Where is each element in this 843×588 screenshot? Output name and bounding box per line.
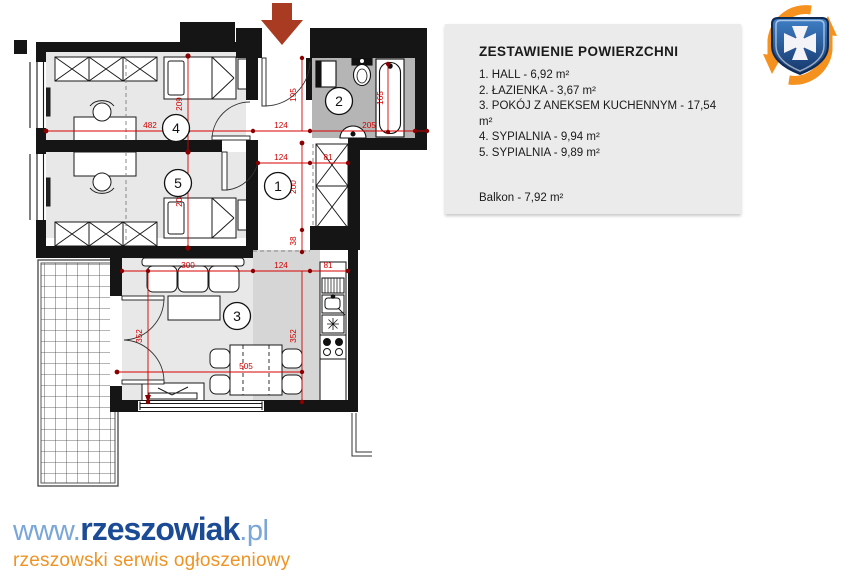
room-badge-hall: 1	[265, 173, 292, 200]
legend-item: 1. HALL - 6,92 m²	[479, 68, 731, 84]
legend-title: ZESTAWIENIE POWIERZCHNI	[479, 44, 731, 59]
window-bedroom5	[28, 154, 46, 220]
kitchen-counter	[320, 262, 346, 402]
svg-text:3: 3	[233, 308, 241, 324]
room-badge-bedroom4: 4	[163, 115, 190, 142]
dim-label: 505	[239, 362, 253, 371]
svg-text:1: 1	[274, 178, 282, 194]
area-summary-panel: ZESTAWIENIE POWIERZCHNI 1. HALL - 6,92 m…	[445, 24, 741, 214]
radiator-icon	[46, 88, 50, 116]
dim-label: 124	[274, 121, 288, 130]
bed-icon	[164, 57, 236, 99]
dim-label: 352	[289, 329, 298, 343]
url-www: www.	[13, 515, 80, 547]
svg-text:4: 4	[172, 120, 180, 136]
site-watermark: www.rzeszowiak.pl rzeszowski serwis ogło…	[13, 512, 290, 572]
legend-balcony: Balkon - 7,92 m²	[479, 192, 731, 204]
dim-label: 38	[289, 236, 298, 246]
washing-machine-icon	[316, 61, 336, 87]
floorplan-page: 482 124 205 124 81 300 124 81 505 209 20…	[0, 0, 843, 588]
dim-label: 209	[175, 97, 184, 111]
legend-item: 2. ŁAZIENKA - 3,67 m²	[479, 84, 731, 100]
dim-label: 195	[289, 88, 298, 102]
wardrobe-icon	[55, 222, 157, 246]
drainer-icon	[322, 278, 344, 293]
window-bedroom4	[28, 62, 46, 128]
room-badge-bathroom: 2	[326, 88, 353, 115]
dim-label: 124	[274, 261, 288, 270]
room-badge-bedroom5: 5	[165, 170, 192, 197]
balcony	[38, 260, 118, 486]
site-url: www.rzeszowiak.pl	[13, 512, 290, 548]
desk-icon	[74, 152, 136, 176]
exterior-divider-wall	[352, 413, 372, 456]
legend-item: 4. SYPIALNIA - 9,94 m²	[479, 130, 731, 146]
legend-list: 1. HALL - 6,92 m² 2. ŁAZIENKA - 3,67 m² …	[479, 68, 731, 161]
entrance-door	[262, 58, 310, 106]
entrance-arrow-icon	[261, 3, 303, 45]
svg-text:2: 2	[335, 93, 343, 109]
rzeszowiak-logo	[761, 2, 839, 88]
url-brand: rzeszowiak	[80, 511, 239, 547]
room-badge-living: 3	[224, 303, 251, 330]
tv-stand-icon	[142, 383, 204, 402]
dim-label: 300	[181, 261, 195, 270]
kitchen-sink-icon	[322, 295, 345, 315]
url-tld: .pl	[239, 515, 268, 547]
toilet-icon	[352, 57, 372, 86]
coffee-table-icon	[168, 296, 220, 320]
hood-icon	[322, 315, 344, 333]
dim-label: 165	[376, 91, 385, 105]
wardrobe-icon	[55, 57, 157, 81]
dim-label: 81	[323, 261, 333, 270]
radiator-icon	[46, 178, 50, 206]
site-tagline: rzeszowski serwis ogłoszeniowy	[13, 550, 290, 572]
dim-label: 352	[135, 329, 144, 343]
dim-label: 124	[274, 153, 288, 162]
svg-text:5: 5	[174, 175, 182, 191]
window-living	[138, 401, 264, 411]
legend-item: 5. SYPIALNIA - 9,89 m²	[479, 146, 731, 162]
dim-label: 81	[323, 153, 333, 162]
stove-icon	[320, 335, 346, 359]
dim-label: 482	[143, 121, 157, 130]
floorplan-drawing: 482 124 205 124 81 300 124 81 505 209 20…	[0, 0, 450, 510]
dim-label: 205	[362, 121, 376, 130]
legend-item: 3. POKÓJ Z ANEKSEM KUCHENNYM - 17,54 m²	[479, 99, 731, 130]
